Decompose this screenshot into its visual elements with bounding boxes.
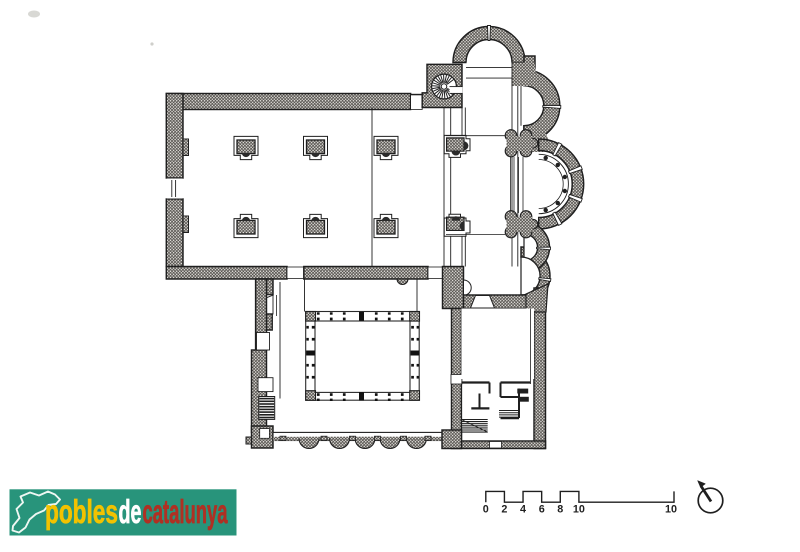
svg-text:2: 2	[501, 504, 507, 516]
svg-text:pobles: pobles	[45, 493, 118, 530]
svg-text:catalunya: catalunya	[143, 493, 228, 530]
svg-text:6: 6	[539, 504, 545, 516]
svg-text:8: 8	[557, 504, 563, 516]
svg-text:10: 10	[665, 504, 677, 516]
svg-text:10: 10	[573, 504, 585, 516]
svg-text:4: 4	[520, 504, 526, 516]
svg-text:0: 0	[483, 504, 489, 516]
svg-text:de: de	[119, 493, 142, 530]
